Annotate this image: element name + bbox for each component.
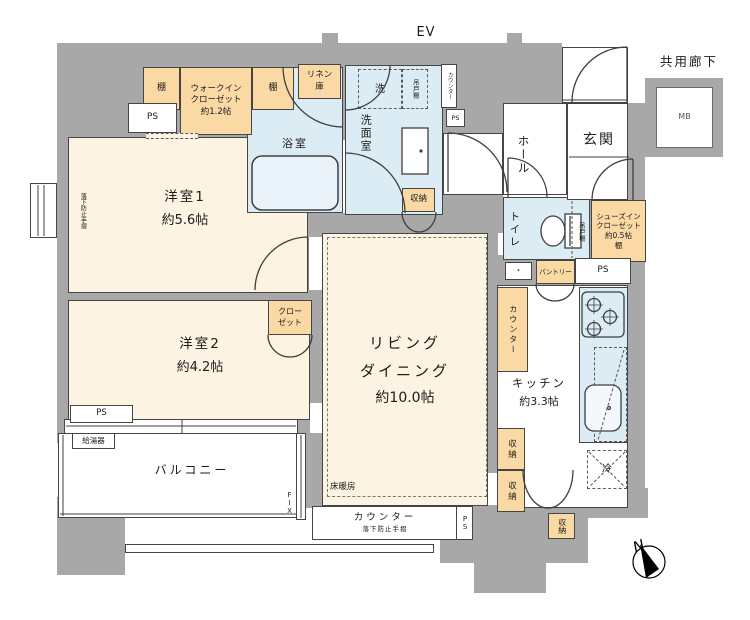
closet-line2: ゼット (278, 318, 302, 328)
kitchen-cupboard: 吊戸棚 (594, 347, 627, 442)
kitchen-name: キッチン (500, 376, 578, 391)
room-genkan (567, 103, 628, 200)
storage-stack-2: 収納 (497, 470, 525, 512)
toilet-cupboard-label: 吊戸棚 (577, 222, 585, 242)
kitchen-size: 約3.3帖 (500, 395, 578, 409)
sic-line1: シューズイン (596, 212, 641, 222)
shelf-box-2: 棚 (252, 67, 294, 110)
toilet-label: トイレ (506, 203, 521, 257)
kitchen-label: キッチン 約3.3帖 (500, 376, 578, 409)
storage-bottom: 収納 (548, 513, 575, 539)
linen-cabinet: リネン 庫 (298, 64, 341, 99)
genkan-label: 玄関 (572, 131, 626, 149)
yoshitsu2-size: 約4.2帖 (125, 360, 275, 377)
living-dining-label: リビング ダイニング 約10.0帖 (330, 334, 480, 407)
ps-label: PS (451, 114, 459, 122)
ps-box-hall: PS (446, 109, 465, 127)
floor-heating-label: 床暖房 (330, 482, 356, 493)
wall-right (628, 103, 645, 490)
walk-in-closet: ウォークイン クローゼット 約1.2帖 (180, 67, 252, 135)
hall-name: ホール (516, 135, 531, 176)
storage-washroom: 収納 (402, 188, 435, 212)
wall-ev-stub-left (322, 33, 338, 45)
toilet-cupboard-label-box: 吊戸棚 (574, 208, 588, 256)
yoshitsu1-label: 洋室1 約5.6帖 (110, 189, 260, 229)
storage-label: 収納 (505, 439, 516, 460)
ps-box-bottom-left: PS (70, 405, 133, 423)
handrail-left-label-box: 落下防止手摺 (76, 168, 89, 254)
washroom-name: 洗面室 (358, 114, 372, 153)
storage-label: 収納 (556, 518, 566, 534)
dot-label: ・ (515, 266, 523, 276)
sic-line3: 約0.5帖 (605, 231, 632, 241)
storage-label: 収納 (410, 194, 427, 205)
balcony-label: バルコニー (132, 463, 252, 479)
closet-line1: クロー (278, 307, 302, 317)
wall-hall-lower (443, 195, 503, 233)
refrigerator-space: 冷 (587, 450, 627, 489)
compass-n-label: N (630, 536, 647, 557)
washroom-cupboard: 吊戸棚 (402, 69, 428, 109)
room-hall-passage (443, 133, 503, 195)
shelf-label: 棚 (157, 83, 166, 95)
toilet-name: トイレ (507, 211, 521, 249)
fix-window (296, 433, 306, 520)
wall-ev-stub-right (507, 33, 522, 45)
ps-box-vertical: PS (456, 506, 473, 540)
washroom-counter-label: カウンター (445, 72, 452, 100)
washer-label: 洗 (375, 83, 385, 96)
water-heater: 給湯器 (72, 433, 115, 449)
closet-yo2: クロー ゼット (268, 300, 312, 335)
shelf-label: 棚 (268, 83, 277, 95)
counter-label: カウンター (354, 512, 417, 524)
compass-needle (640, 544, 659, 578)
hall-label: ホール (514, 122, 532, 188)
wall-ld-left-lower (306, 433, 322, 508)
yo1-window-bay (30, 183, 57, 238)
wall-bottom-2 (474, 563, 546, 593)
ev-label: EV (398, 25, 454, 42)
water-heater-label: 給湯器 (82, 436, 105, 446)
ps-label: PS (460, 515, 469, 531)
washroom-counter-strip: カウンター (441, 64, 457, 108)
corridor-label: 共用廊下 (630, 54, 748, 70)
ps-box-entry: PS (575, 258, 631, 284)
floorplan: 棚 ウォークイン クローゼット 約1.2帖 棚 リネン 庫 クロー ゼット シュ… (0, 0, 750, 620)
fix-label: FIX (284, 491, 293, 515)
counter-strip-labels: カウンター 落下防止手摺 (312, 507, 458, 539)
pantry-label: パントリー (539, 268, 572, 276)
ps-label: PS (597, 265, 608, 277)
ps-label: PS (147, 112, 158, 124)
wic-line2: クローゼット (190, 95, 241, 106)
toilet-hand-basin: ・ (505, 262, 532, 280)
wic-opening (146, 133, 198, 139)
ld-line2: ダイニング (330, 362, 480, 382)
linen-line2: 庫 (315, 82, 324, 93)
ps-label: PS (96, 408, 107, 419)
shoes-in-closet: シューズイン クローゼット 約0.5帖 棚 (591, 200, 646, 262)
fix-label-box: FIX (283, 483, 295, 523)
sic-line2: クローゼット (596, 221, 641, 231)
handrail-label: 落下防止手摺 (363, 525, 408, 533)
yoshitsu2-name: 洋室2 (125, 336, 275, 354)
entrance-alcove (562, 47, 628, 103)
handrail-label: 落下防止手摺 (79, 193, 87, 229)
fridge-label: 冷 (601, 463, 613, 476)
kitchen-counter-orange: カウンター (497, 287, 528, 372)
yoshitsu2-label: 洋室2 約4.2帖 (125, 336, 275, 376)
washroom-cupboard-label: 吊戸棚 (411, 79, 419, 99)
mb-label-box: MB (656, 87, 713, 148)
room-hall (503, 103, 567, 195)
balcony-ledge (125, 544, 434, 553)
kitchen-cupboard-label: 吊戸棚 (606, 385, 614, 405)
pantry: パントリー (536, 260, 575, 284)
ld-line1: リビング (330, 334, 480, 354)
kitchen-counter-label: カウンター (507, 305, 517, 355)
wic-line3: 約1.2帖 (201, 107, 232, 118)
storage-label: 収納 (505, 481, 516, 502)
ps-box-top-left: PS (128, 103, 177, 133)
yoshitsu1-name: 洋室1 (110, 189, 260, 207)
washroom-label: 洗面室 (356, 102, 374, 164)
wic-line1: ウォークイン (190, 84, 241, 95)
linen-line1: リネン (307, 70, 333, 81)
mb-label: MB (678, 112, 690, 122)
yoshitsu1-size: 約5.6帖 (110, 213, 260, 230)
compass: N (630, 536, 665, 578)
storage-stack-1: 収納 (497, 428, 525, 470)
bath-label: 浴室 (266, 137, 324, 151)
ld-size: 約10.0帖 (330, 389, 480, 407)
sic-line4: 棚 (615, 241, 623, 251)
